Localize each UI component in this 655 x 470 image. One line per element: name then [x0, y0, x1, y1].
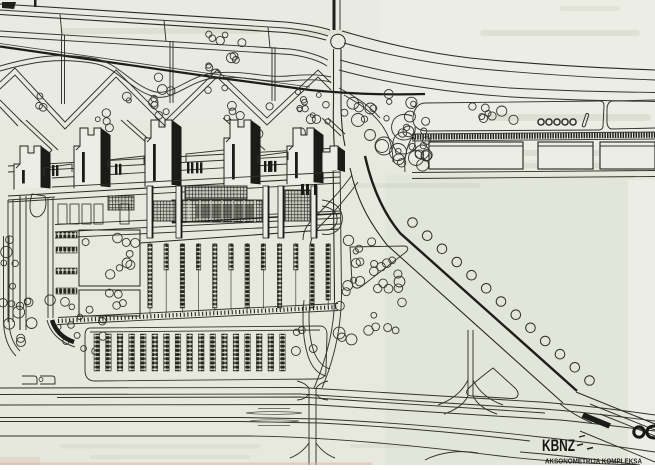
svg-text:KBNZ: KBNZ [542, 437, 575, 455]
svg-text:AKSONOMETRIJA KOMPLEKSA: AKSONOMETRIJA KOMPLEKSA [545, 459, 642, 466]
